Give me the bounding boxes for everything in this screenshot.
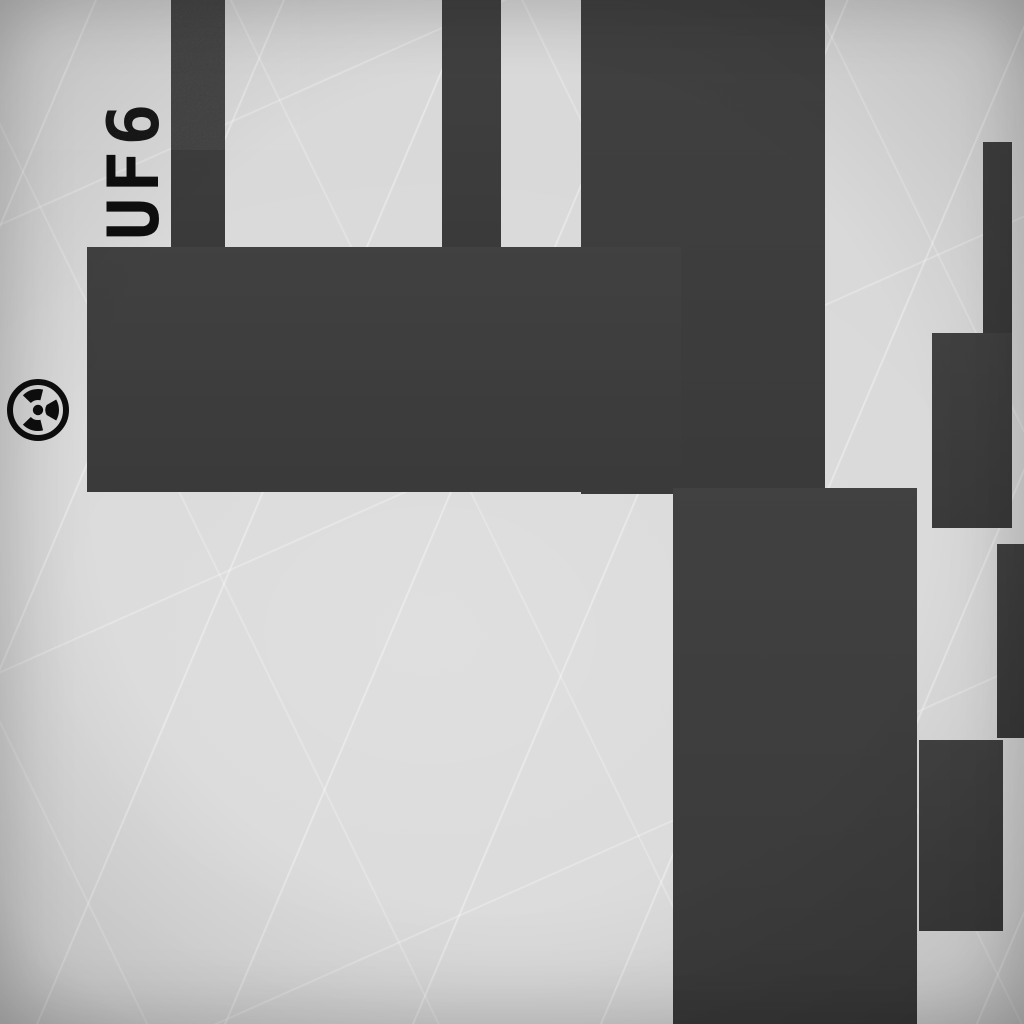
scene-canvas: UF6 [0, 0, 1024, 1024]
band-horizontal [87, 247, 681, 492]
pipe-top-middle-bar [442, 0, 501, 250]
column-central [673, 488, 917, 1024]
pipe-top-left-bar [171, 0, 225, 250]
radiation-trefoil-icon [5, 377, 71, 443]
block-right-edge [997, 544, 1024, 738]
block-right-lower [919, 740, 1003, 931]
bar-right-thin [983, 142, 1012, 337]
block-right-upper [932, 333, 1012, 528]
uf6-label: UF6 [101, 88, 167, 240]
